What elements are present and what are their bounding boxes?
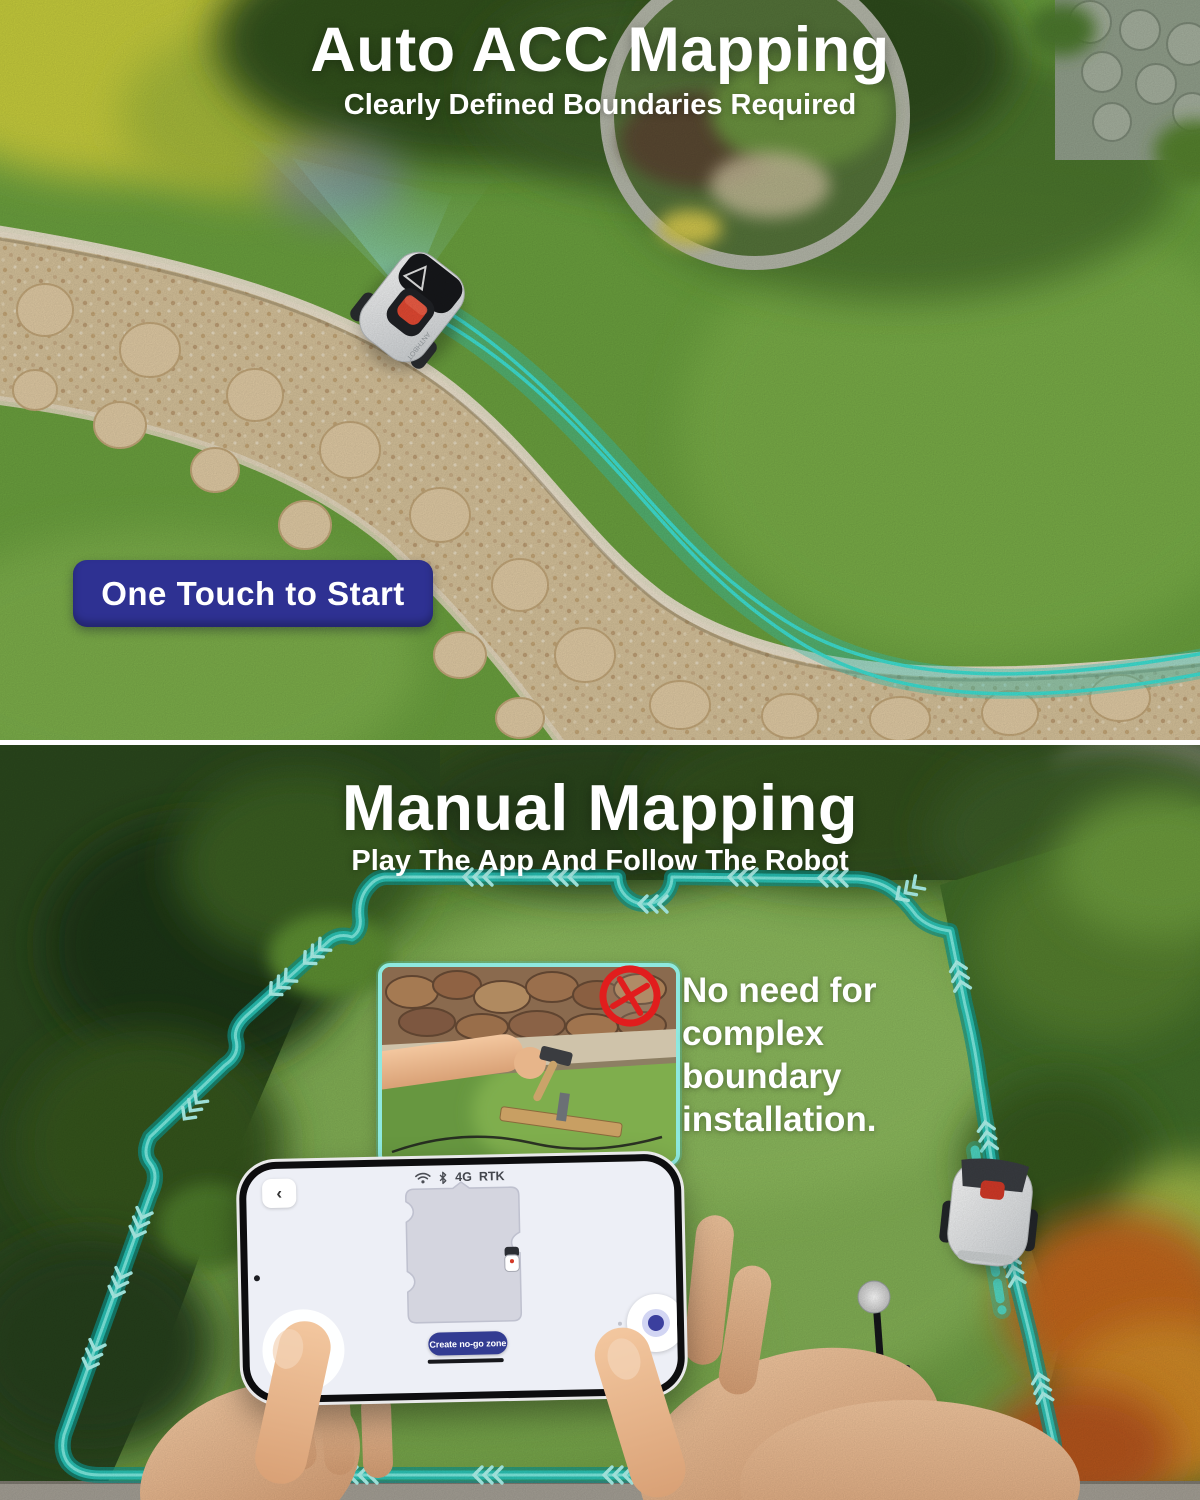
no-symbol-icon [596,962,664,1030]
joystick-dot [618,1322,622,1326]
app-screen: ‹ 4G RTK [246,1161,679,1397]
front-camera [254,1275,260,1281]
auto-section-title: Auto ACC Mapping [0,14,1200,86]
no-wire-callout: No need for complex boundary installatio… [682,969,876,1141]
smartphone: ‹ 4G RTK [235,1150,688,1406]
home-indicator[interactable] [428,1358,504,1364]
callout-line: boundary [682,1055,876,1098]
right-joystick[interactable] [626,1293,678,1352]
auto-section-subtitle: Clearly Defined Boundaries Required [0,89,1200,122]
robot-position-marker [504,1247,519,1272]
manual-section-title: Manual Mapping [0,770,1200,845]
one-touch-start-button[interactable]: One Touch to Start [73,560,433,627]
callout-line: No need for [682,969,876,1012]
auto-mapping-section: ANTHBOT Auto ACC Mapping Clearly Defined… [0,0,1200,740]
manual-mapping-section: Manual Mapping Play The App And Follow T… [0,745,1200,1500]
create-no-go-zone-button[interactable]: Create no-go zone [428,1331,507,1356]
callout-line: complex [682,1012,876,1055]
callout-line: installation. [682,1098,876,1141]
lawn-map[interactable] [397,1179,528,1330]
left-joystick[interactable] [262,1308,346,1392]
manual-section-subtitle: Play The App And Follow The Robot [0,845,1200,878]
